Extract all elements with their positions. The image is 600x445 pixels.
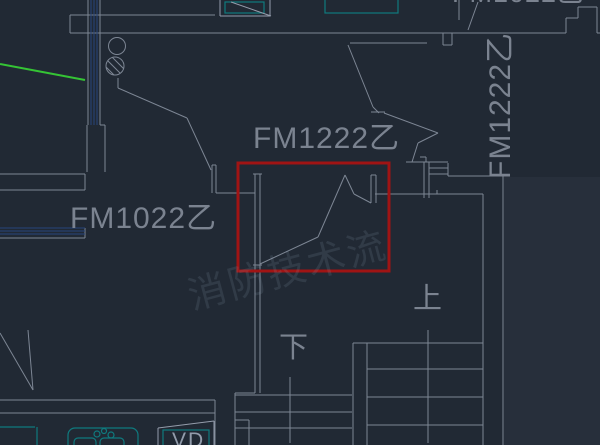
wall-hatch-blue <box>0 0 97 234</box>
label-shaft-vd[interactable]: VD <box>172 430 205 445</box>
label-stair-down[interactable]: 下 <box>279 334 308 363</box>
label-stair-up[interactable]: 上 <box>413 285 442 314</box>
shaft-box-top[interactable] <box>220 0 271 16</box>
door-fm1022-swing[interactable] <box>118 78 255 193</box>
right-room-floor <box>504 177 600 445</box>
label-door-fm1222-center[interactable]: FM1222乙 <box>253 124 400 154</box>
label-door-fm1222-vertical[interactable]: FM1222乙 <box>486 32 516 179</box>
label-door-fm1022[interactable]: FM1022乙 <box>70 204 217 234</box>
kitchen-fixtures[interactable] <box>0 427 138 445</box>
detail-circle[interactable] <box>109 38 126 55</box>
label-door-top-partial[interactable]: FM1022乙 <box>452 0 585 7</box>
reference-line-green[interactable] <box>0 64 85 80</box>
vent-rect-top[interactable] <box>325 0 398 13</box>
door-fm1222-top-swing[interactable] <box>348 43 427 113</box>
detail-circle-hatched[interactable] <box>101 51 127 78</box>
cad-canvas: FM1022乙 FM1222乙 FM1222乙 FM1022乙 上 下 VD 消… <box>0 0 600 445</box>
